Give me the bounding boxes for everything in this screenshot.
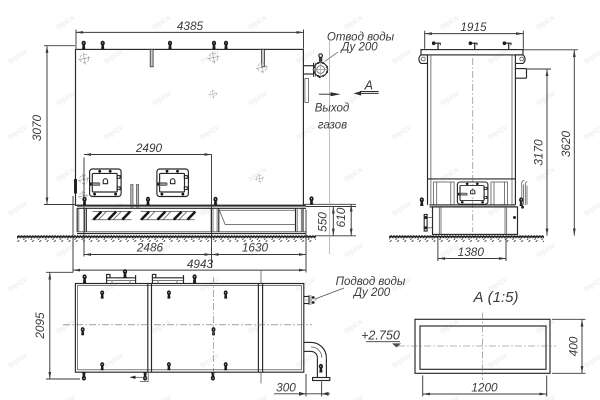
svg-text:2490: 2490 (135, 141, 163, 155)
svg-text:400: 400 (566, 336, 580, 356)
svg-text:+2.750: +2.750 (361, 329, 400, 343)
svg-text:610: 610 (334, 207, 348, 227)
svg-text:газов: газов (318, 120, 347, 132)
svg-text:4385: 4385 (177, 19, 204, 33)
svg-text:3620: 3620 (559, 130, 573, 157)
svg-text:3170: 3170 (532, 139, 546, 166)
svg-text:1200: 1200 (471, 381, 498, 395)
svg-text:300: 300 (276, 380, 296, 394)
svg-text:Ду 200: Ду 200 (339, 42, 378, 54)
svg-text:Ду 200: Ду 200 (352, 287, 391, 299)
svg-text:550: 550 (316, 212, 330, 232)
svg-text:А: А (364, 79, 373, 93)
svg-text:3070: 3070 (30, 114, 44, 141)
svg-text:2486: 2486 (136, 241, 164, 255)
svg-text:1380: 1380 (458, 245, 485, 259)
svg-text:2095: 2095 (33, 312, 47, 340)
svg-text:А (1:5): А (1:5) (472, 289, 518, 306)
svg-text:Подвод воды: Подвод воды (336, 276, 406, 288)
svg-text:Выход: Выход (315, 103, 350, 115)
svg-text:1915: 1915 (460, 20, 487, 34)
svg-text:1630: 1630 (242, 241, 269, 255)
svg-text:4943: 4943 (187, 257, 214, 271)
